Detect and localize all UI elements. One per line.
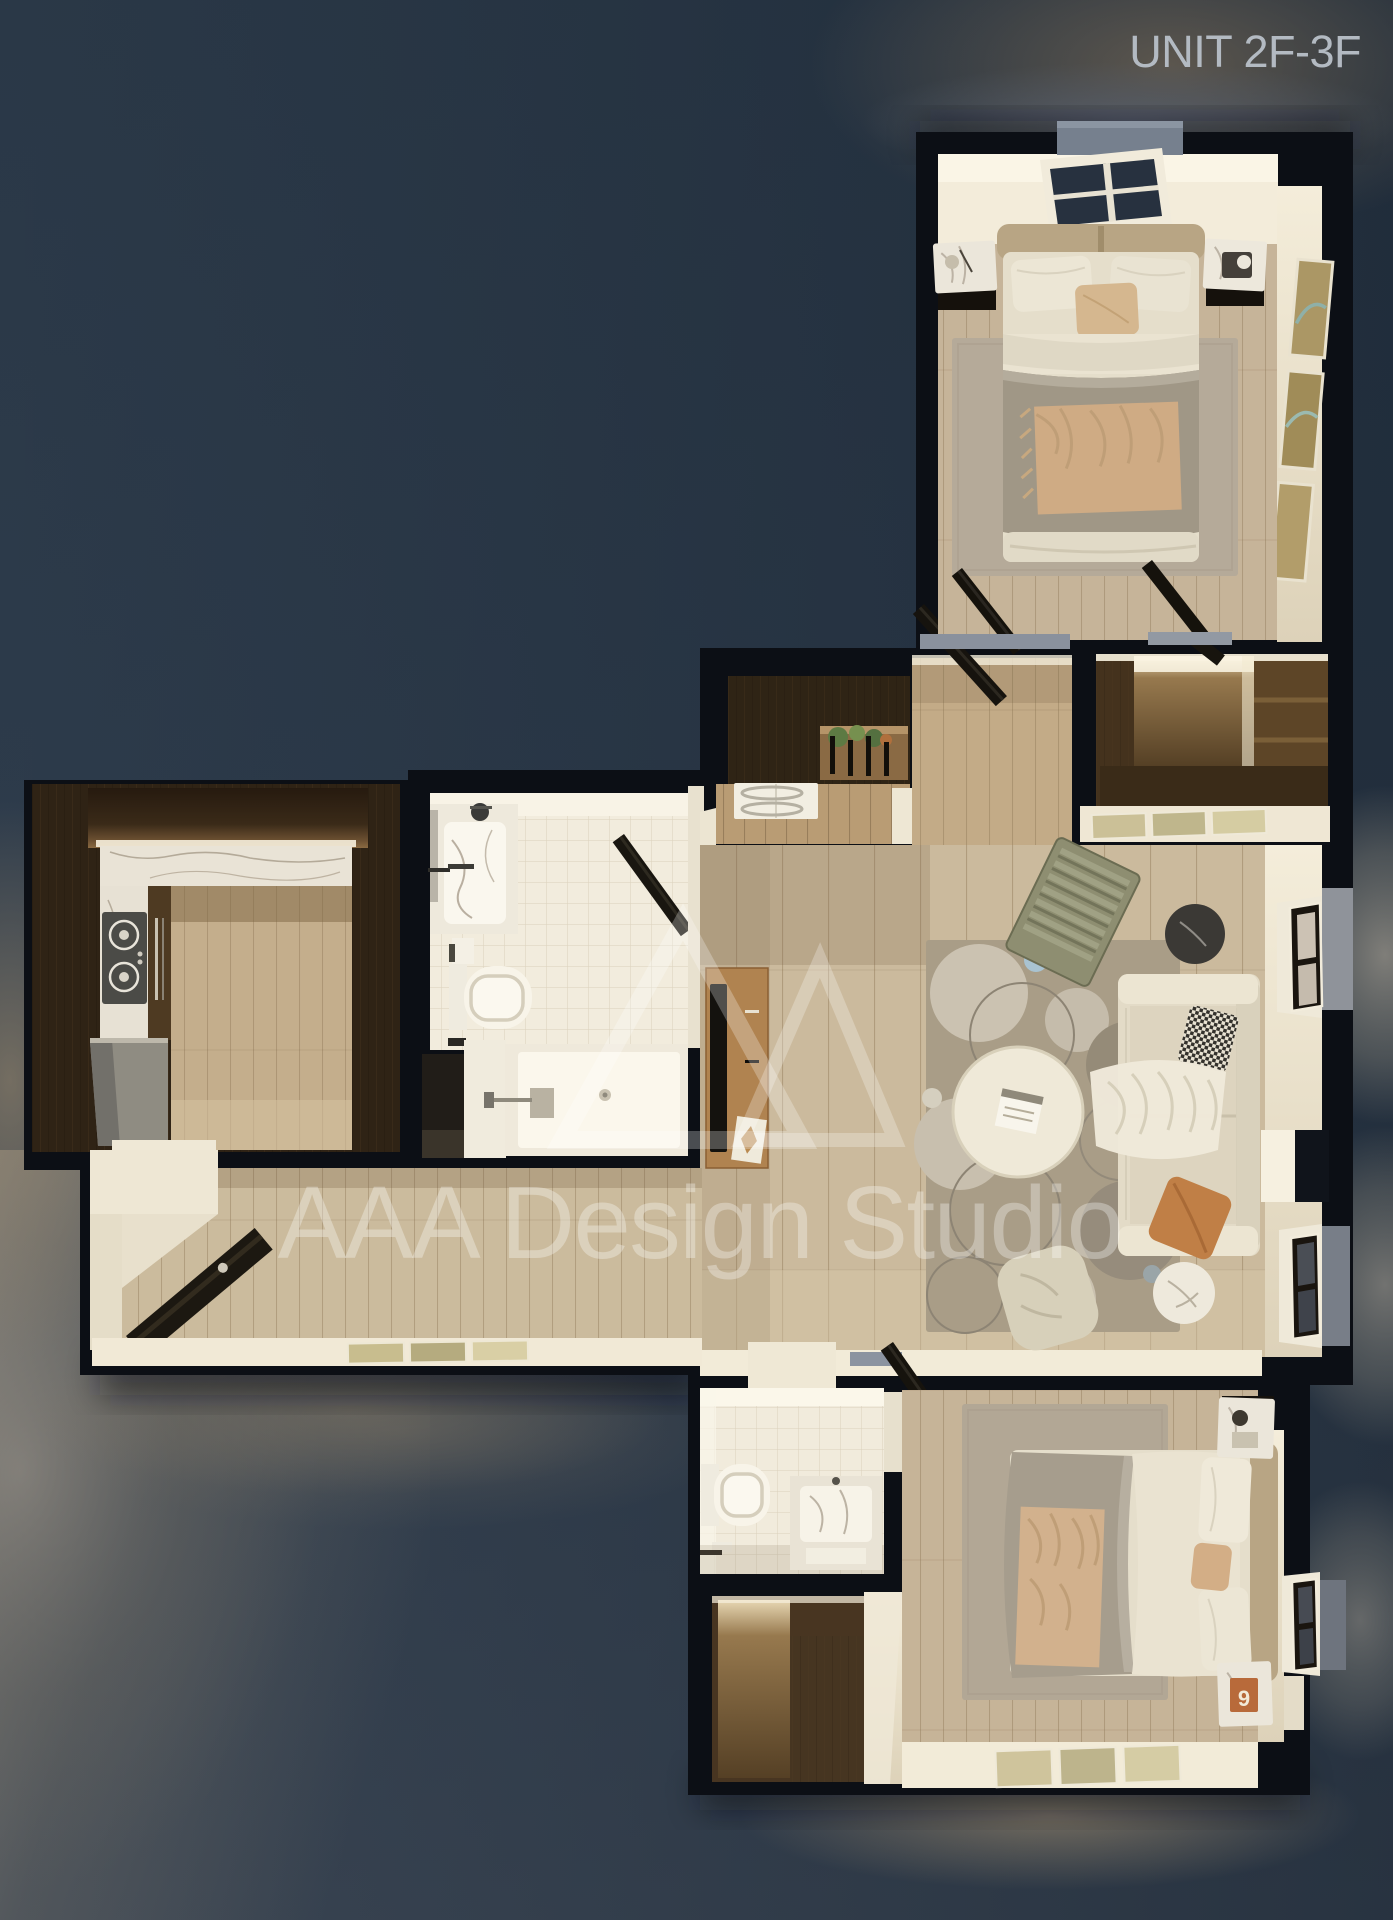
svg-text:AAA Design Studio: AAA Design Studio (278, 1165, 1123, 1280)
svg-text:UNIT 2F-3F: UNIT 2F-3F (1129, 26, 1361, 77)
svg-text:9: 9 (1238, 1686, 1250, 1711)
